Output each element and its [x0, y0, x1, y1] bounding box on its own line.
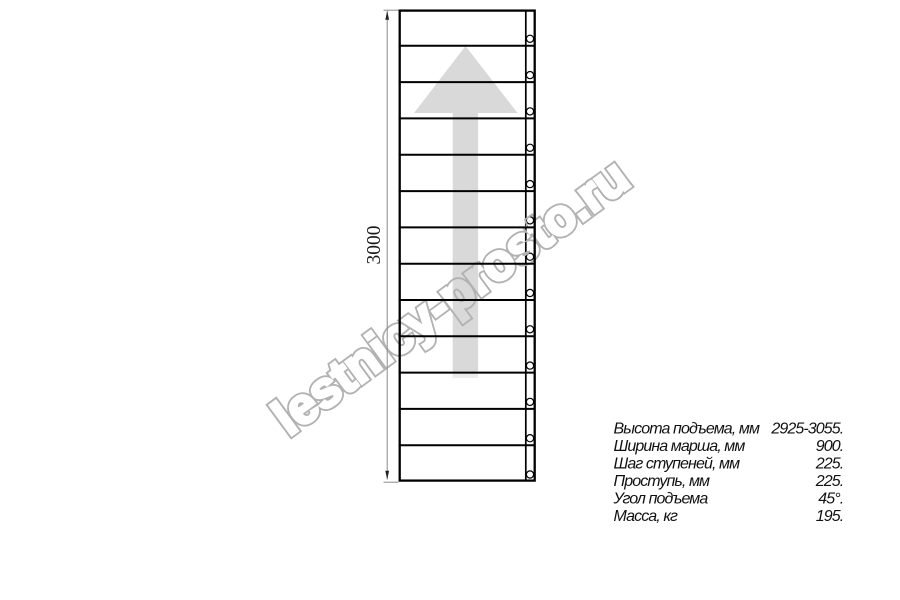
svg-text:Угол подъема: Угол подъема: [613, 490, 709, 507]
svg-text:45°.: 45°.: [818, 490, 843, 507]
svg-text:900.: 900.: [816, 438, 844, 455]
svg-text:3000: 3000: [364, 226, 385, 265]
svg-text:Ширина марша, мм: Ширина марша, мм: [614, 438, 746, 455]
svg-text:Высота подъема, мм: Высота подъема, мм: [614, 420, 760, 437]
svg-text:Проступь, мм: Проступь, мм: [614, 473, 711, 490]
svg-text:225.: 225.: [815, 473, 844, 490]
svg-text:Масса, кг: Масса, кг: [614, 508, 679, 525]
svg-text:Шаг ступеней, мм: Шаг ступеней, мм: [614, 455, 741, 472]
svg-text:195.: 195.: [816, 508, 844, 525]
svg-text:225.: 225.: [815, 455, 844, 472]
svg-text:2925-3055.: 2925-3055.: [770, 420, 843, 437]
